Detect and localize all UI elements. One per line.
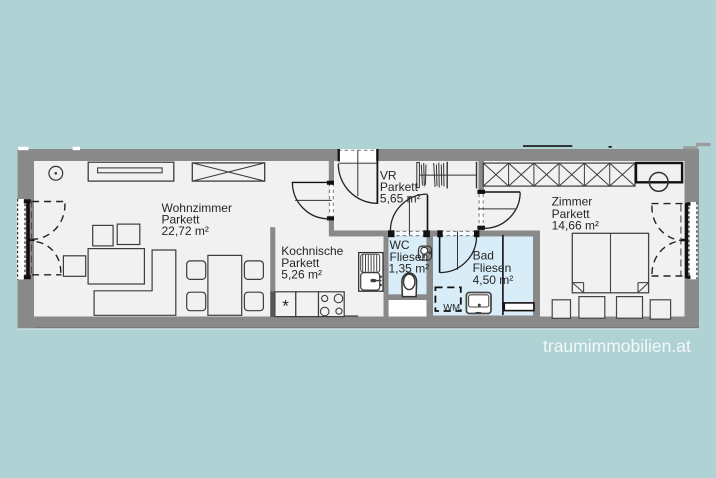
svg-text:traumimmobilien.at: traumimmobilien.at (543, 336, 691, 356)
svg-text:*: * (282, 296, 289, 315)
svg-text:WM: WM (443, 303, 460, 314)
svg-text:1,35 m²: 1,35 m² (389, 261, 430, 275)
svg-text:14,66 m²: 14,66 m² (552, 218, 599, 232)
svg-text:4,50 m²: 4,50 m² (473, 273, 514, 287)
svg-text:5,65 m²: 5,65 m² (380, 192, 421, 206)
svg-text:22,72 m²: 22,72 m² (162, 224, 209, 238)
svg-text:5,26 m²: 5,26 m² (281, 267, 322, 281)
